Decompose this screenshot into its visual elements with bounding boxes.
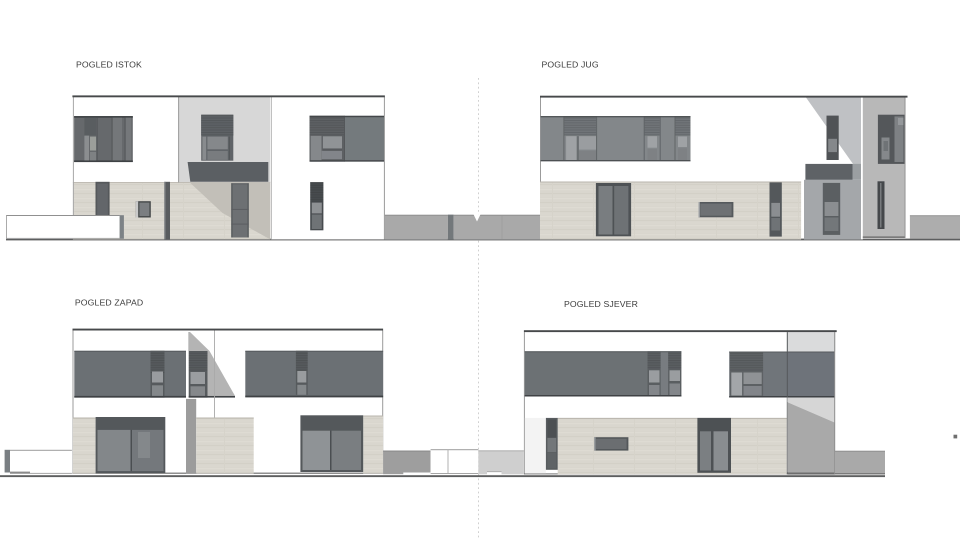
svg-text:POGLED JUG: POGLED JUG xyxy=(542,60,599,70)
svg-text:POGLED ISTOK: POGLED ISTOK xyxy=(76,60,142,70)
svg-text:POGLED SJEVER: POGLED SJEVER xyxy=(564,299,638,309)
svg-text:POGLED ZAPAD: POGLED ZAPAD xyxy=(75,298,143,308)
